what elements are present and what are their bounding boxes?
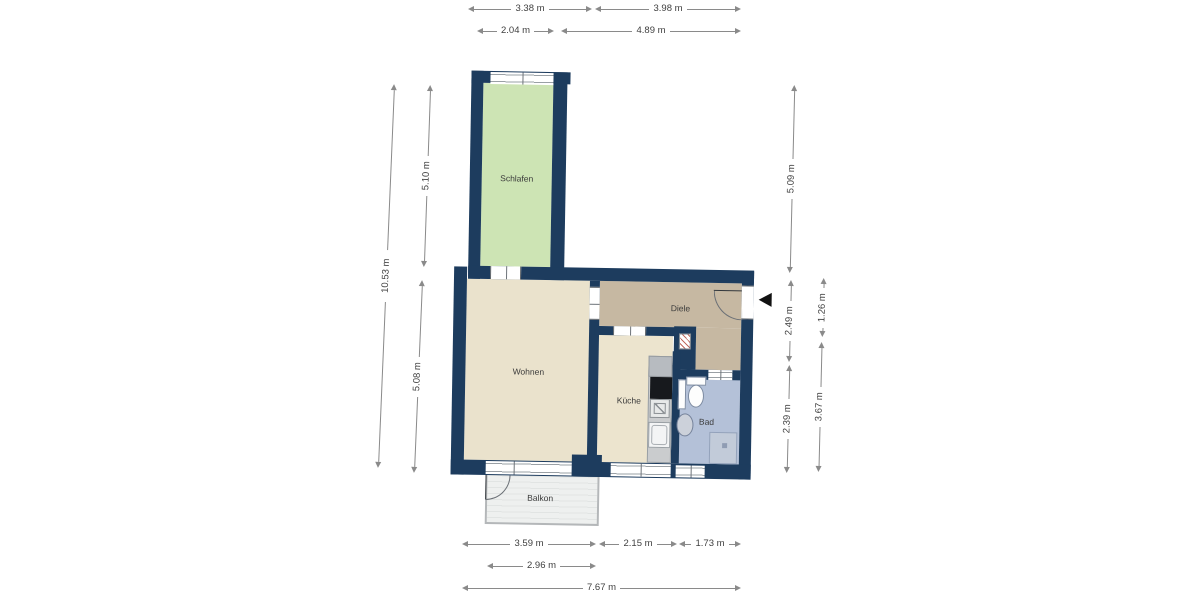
door-tick [720,370,721,380]
dimension-label: 2.96 m [523,561,560,571]
room-diele-nook [695,328,741,371]
duct-shaft [679,333,691,349]
window-mullion [522,73,523,85]
dimension-label: 1.26 m [818,293,828,322]
room-label-kueche: Küche [617,395,641,405]
dimension-top-2b: 4.89 m [561,25,741,37]
dimension-top-2a: 2.04 m [477,25,554,37]
floor-plan: Schlafen Wohnen Diele Küche Bad Balkon [449,61,787,542]
dimension-bottom-1c: 1.73 m [679,538,741,550]
dimension-right-lower: 2.39 m [780,365,797,473]
dimension-label: 5.09 m [787,164,797,193]
dimension-label: 5.10 m [422,161,433,190]
dimension-label: 1.73 m [691,539,728,549]
dimension-left-lower: 5.08 m [407,280,429,473]
window-mullion [690,466,691,478]
dimension-top-1b: 3.98 m [595,3,741,15]
entrance-arrow-icon [759,293,772,307]
opening-wohnen-diele [589,287,600,320]
room-label-wohnen: Wohnen [513,366,545,377]
dimension-top-1a: 3.38 m [468,3,592,15]
dimension-label: 2.04 m [497,26,534,36]
window-mullion [514,461,515,474]
room-label-schlafen: Schlafen [500,173,533,184]
kitchen-stove [650,377,672,399]
window-mullion [641,464,642,477]
faucet-icon [654,403,666,414]
washing-machine [648,422,670,448]
dimension-label: 7.67 m [583,583,620,593]
dimension-label: 2.49 m [785,306,795,335]
opening-schlafen-door [490,266,521,280]
room-label-diele: Diele [671,303,691,313]
door-tick [505,266,506,279]
door-tick [630,326,631,335]
opening-entrance-door [741,285,754,319]
dimension-label: 3.67 m [815,392,825,421]
washer-door-icon [651,425,667,445]
dimension-left-total: 10.53 m [371,84,401,468]
dimension-bottom-total: 7.67 m [462,582,741,594]
opening-kueche-door [613,326,646,336]
dimension-label: 3.98 m [649,4,686,14]
room-label-bad: Bad [699,417,714,427]
window-balcony-band [486,461,572,475]
room-label-balkon: Balkon [527,493,553,503]
shower-drain-icon [722,443,727,448]
dimension-label: 2.39 m [783,404,793,433]
dimension-label: 5.08 m [413,362,424,391]
opening-bad-door [708,370,732,380]
kitchen-fridge [648,356,672,377]
dimension-right-inner-lower: 3.67 m [811,342,828,472]
dimension-label: 3.59 m [510,539,547,549]
dimension-left-upper: 5.10 m [417,85,437,267]
dimension-bottom-2: 2.96 m [487,560,596,572]
window-schlafen [490,72,553,85]
wall-pillar [572,454,602,477]
kitchen-sink [650,399,670,418]
wall-wing-right [550,72,568,280]
dimension-label: 2.15 m [619,539,656,549]
window-bad [676,465,705,478]
bathroom-partition [678,379,687,409]
dimension-label: 4.89 m [632,26,669,36]
dimension-label: 10.53 m [381,259,392,294]
dimension-bottom-1b: 2.15 m [599,538,677,550]
dimension-right-inner-upper: 1.26 m [815,278,830,337]
dimension-right-mid: 2.49 m [782,280,798,362]
dimension-label: 3.38 m [511,4,548,14]
door-tick [590,303,600,304]
dimension-bottom-1a: 3.59 m [462,538,596,550]
floor-plan-page: Schlafen Wohnen Diele Küche Bad Balkon 3… [0,0,1200,600]
window-kueche [611,463,671,477]
